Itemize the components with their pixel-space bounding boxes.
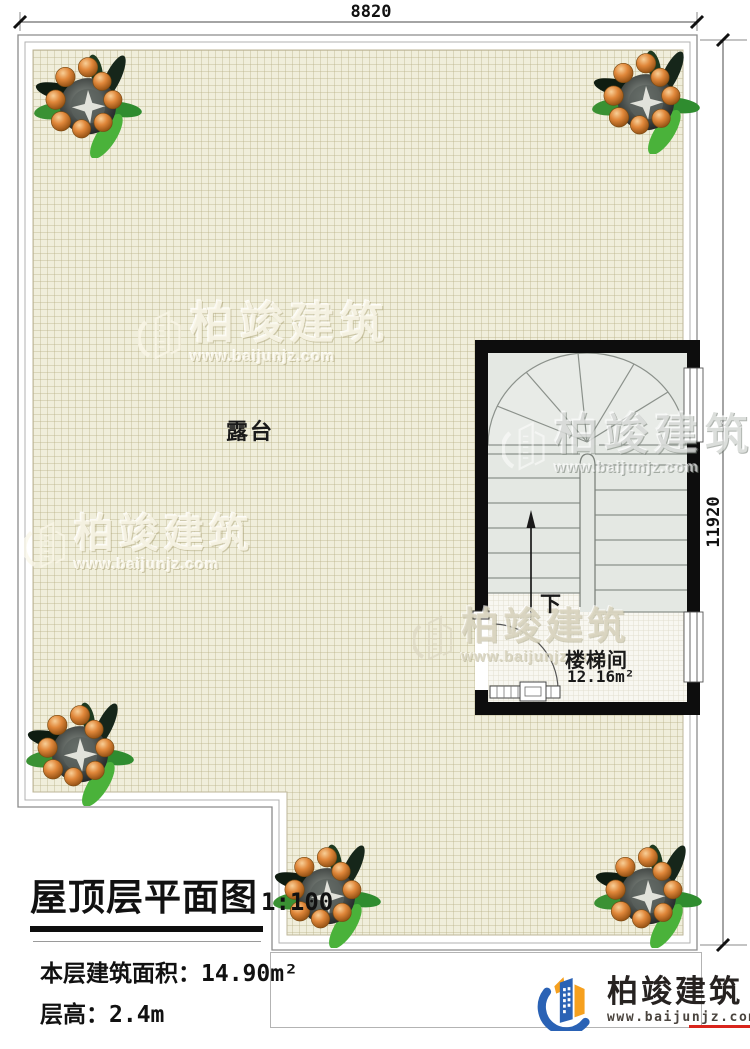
floor-area-row: 本层建筑面积：14.90m² <box>30 954 333 988</box>
title-underline-bar <box>30 926 263 932</box>
floor-area-value: 14.90m² <box>201 961 298 987</box>
stair-down-label: 下 <box>540 588 561 618</box>
terrace-label: 露台 <box>226 414 274 446</box>
drawing-scale: 1:100 <box>261 888 333 916</box>
title-underline-thin <box>33 941 261 942</box>
stair-room-area: 12.16m² <box>567 667 634 686</box>
drawing-title: 屋顶层平面图 <box>30 867 258 921</box>
floor-height-row: 层高：2.4m <box>30 995 333 1029</box>
floor-height-value: 2.4m <box>109 1002 164 1028</box>
floor-area-label: 本层建筑面积： <box>40 960 201 986</box>
footer-logo: 柏竣建筑 www.baijunjz.com <box>536 969 750 1031</box>
dimension-right-value: 11920 <box>704 496 724 547</box>
company-logo-icon <box>536 969 602 1031</box>
company-name: 柏竣建筑 <box>607 975 750 1009</box>
dimension-top-value: 8820 <box>333 2 409 22</box>
title-block: 屋顶层平面图 1:100 本层建筑面积：14.90m² 层高：2.4m <box>30 867 333 1029</box>
dimension-line-right <box>700 34 747 951</box>
floor-plan-page: 柏竣建筑 www.baijunjz.com 柏竣建筑 www.baijunjz.… <box>0 0 750 1049</box>
terrace-grid-floor <box>33 50 683 935</box>
floor-height-label: 层高： <box>40 1001 109 1027</box>
stair-window <box>684 368 703 682</box>
company-website: www.baijunjz.com <box>607 1010 750 1025</box>
